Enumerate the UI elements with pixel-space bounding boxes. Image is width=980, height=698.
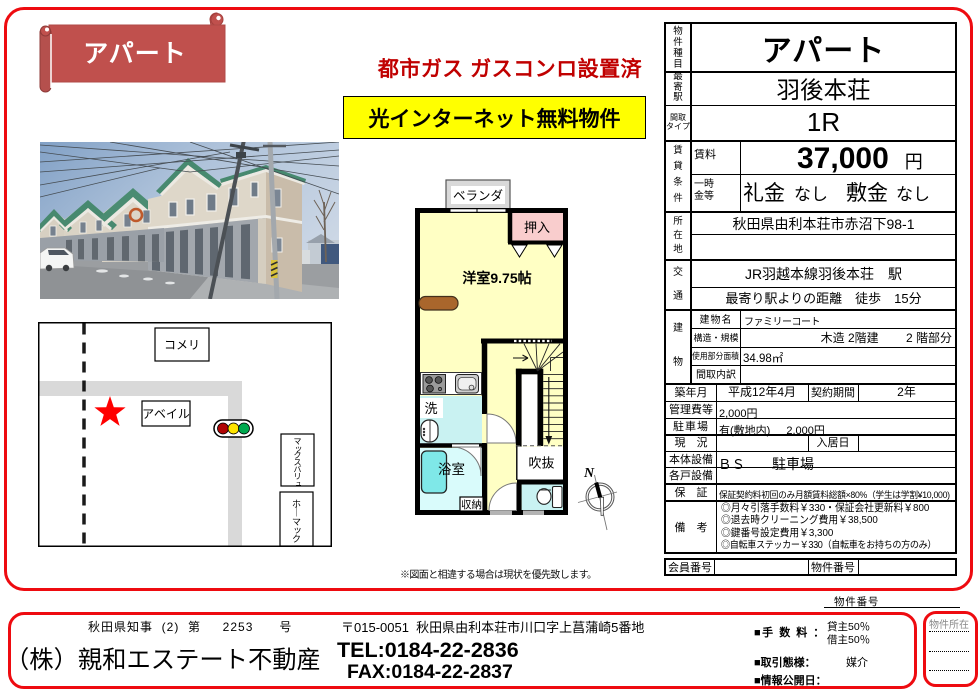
svg-text:アパート: アパート (83, 40, 187, 68)
svg-text:押入: 押入 (524, 220, 550, 235)
svg-text:収納: 収納 (461, 498, 482, 511)
svg-text:｜: ｜ (292, 508, 301, 518)
svg-text:N: N (583, 466, 595, 481)
svg-text:コメリ: コメリ (164, 338, 200, 352)
svg-text:吹抜: 吹抜 (528, 456, 554, 471)
svg-text:ク: ク (292, 534, 301, 544)
svg-text:ュ: ュ (295, 481, 302, 488)
svg-text:洋室9.75帖: 洋室9.75帖 (462, 270, 531, 286)
svg-text:ベランダ: ベランダ (453, 188, 503, 203)
svg-text:洗: 洗 (424, 401, 437, 416)
svg-text:浴室: 浴室 (438, 461, 465, 477)
svg-text:アベイル: アベイル (142, 407, 190, 421)
